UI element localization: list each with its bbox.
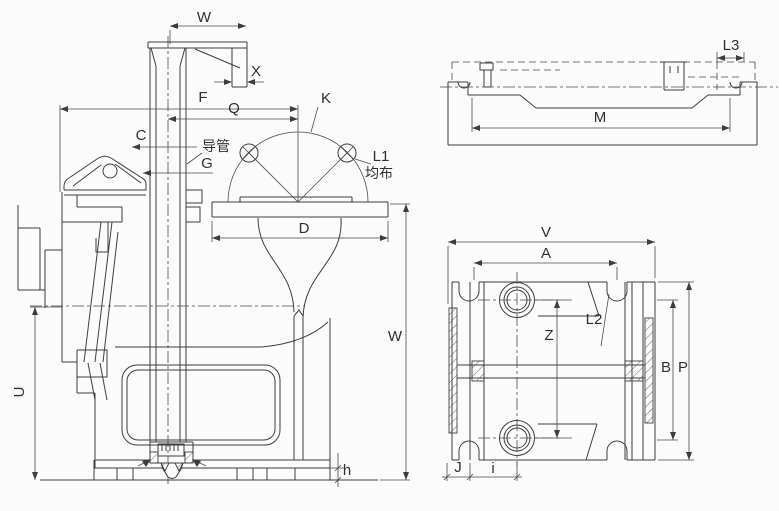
dim-label-l3: L3 bbox=[723, 37, 740, 54]
top-side-view: L3 M bbox=[440, 37, 778, 145]
plan-section-view: V A Z L2 B P J i bbox=[442, 224, 694, 481]
dim-label-w-right: W bbox=[388, 328, 403, 345]
technical-drawing: W X F Q C 导管 G bbox=[0, 0, 779, 511]
dim-label-m: M bbox=[594, 109, 607, 126]
dim-j-i: J i bbox=[442, 459, 522, 481]
dim-label-h: h bbox=[343, 462, 351, 479]
dim-h: h bbox=[330, 453, 351, 487]
guide-tube-column bbox=[150, 36, 186, 484]
hatched-wall-left bbox=[449, 308, 457, 433]
dim-label-v: V bbox=[541, 224, 551, 241]
dim-z: Z bbox=[535, 300, 562, 438]
dim-label-x: X bbox=[251, 63, 261, 80]
dim-label-a: A bbox=[541, 245, 551, 262]
drawing-sheet: W X F Q C 导管 G bbox=[0, 0, 779, 511]
dim-label-d: D bbox=[299, 220, 310, 237]
dim-label-c: C bbox=[136, 127, 147, 144]
hole-centerlines bbox=[478, 272, 572, 466]
left-lug-detail bbox=[480, 63, 493, 87]
nozzle bbox=[138, 442, 206, 479]
dim-w-top: W bbox=[170, 9, 246, 44]
dim-l3: L3 bbox=[717, 37, 744, 62]
link-bars bbox=[77, 222, 118, 400]
dim-a: A bbox=[474, 245, 617, 280]
hatched-wall-right bbox=[645, 318, 653, 423]
inspection-window-outer bbox=[122, 365, 280, 445]
pivot-hole bbox=[103, 164, 117, 178]
dim-d: D bbox=[212, 220, 388, 242]
top-bracket bbox=[148, 42, 247, 87]
dim-label-j: J bbox=[454, 459, 462, 476]
main-elevation-view: W X F Q C 导管 G bbox=[11, 9, 410, 487]
dim-b: B bbox=[657, 300, 678, 440]
dim-f: F bbox=[60, 89, 298, 192]
evenly-distributed-label: 均布 bbox=[365, 165, 393, 181]
dim-label-k: K bbox=[321, 90, 331, 107]
dim-u: U bbox=[11, 307, 62, 480]
dim-label-i: i bbox=[491, 460, 494, 477]
guide-rail bbox=[457, 361, 645, 381]
support-arm bbox=[18, 156, 202, 400]
dim-label-q: Q bbox=[228, 100, 240, 117]
dim-label-g: G bbox=[201, 155, 213, 172]
dim-label-f: F bbox=[198, 89, 207, 106]
dim-w-right: W bbox=[380, 204, 410, 480]
dim-label-b: B bbox=[661, 359, 671, 376]
dim-label-l2: L2 bbox=[586, 311, 603, 328]
dim-label-z: Z bbox=[544, 327, 553, 344]
dim-label-l1: L1 bbox=[373, 148, 390, 165]
callout-k: K bbox=[311, 90, 331, 132]
inspection-window-inner bbox=[127, 370, 275, 440]
dim-label-u: U bbox=[11, 387, 28, 398]
right-lug-detail bbox=[660, 62, 687, 90]
dim-g: G bbox=[143, 155, 213, 176]
guide-tube-label: 导管 bbox=[202, 138, 230, 154]
dim-q: Q bbox=[168, 100, 298, 202]
dim-label-w-top: W bbox=[197, 9, 212, 26]
callout-l1: L1 均布 bbox=[355, 148, 393, 181]
base-plate bbox=[40, 460, 378, 480]
callout-l2: L2 bbox=[586, 294, 609, 346]
dim-m: M bbox=[472, 98, 730, 132]
dim-x: X bbox=[214, 63, 264, 85]
dim-c: C bbox=[132, 127, 197, 150]
dim-label-p: P bbox=[678, 359, 688, 376]
pocket-edges bbox=[538, 282, 599, 460]
